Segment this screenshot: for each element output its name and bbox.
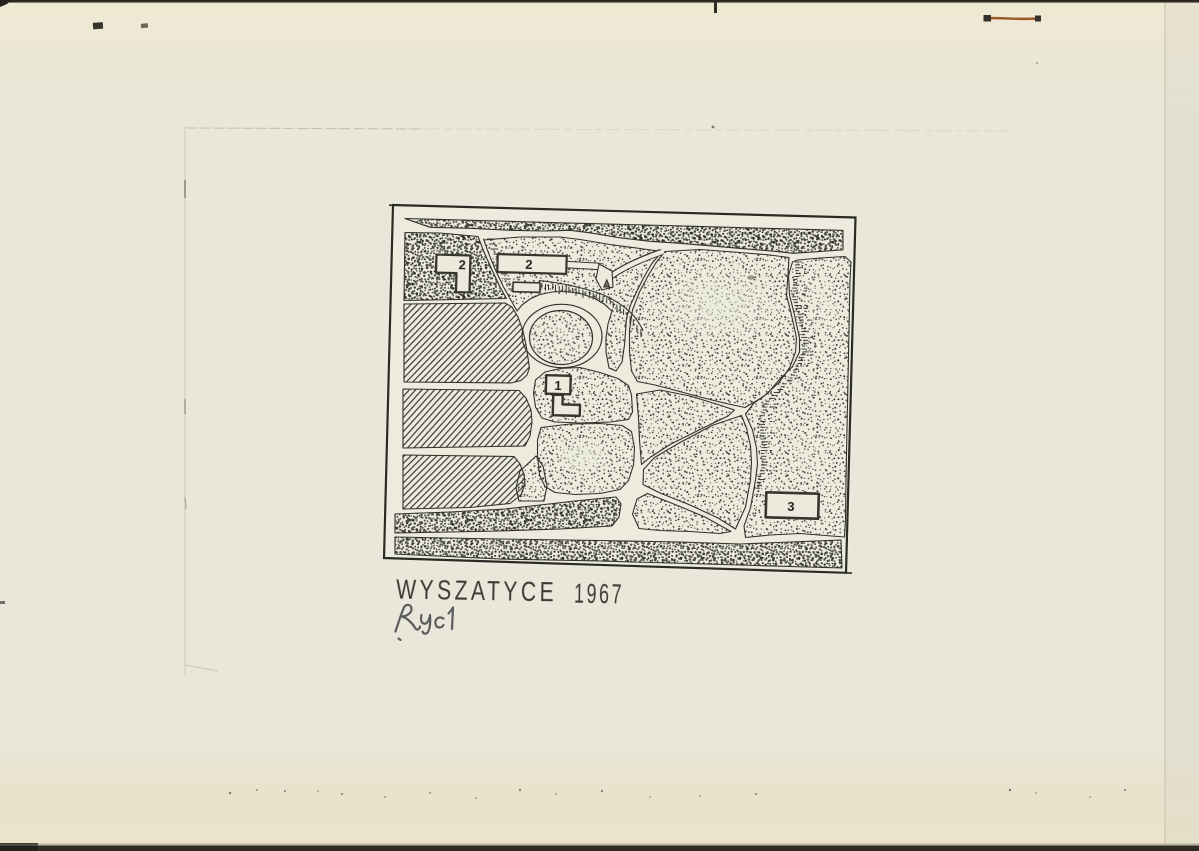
svg-text:2: 2 <box>525 257 533 272</box>
svg-text:1: 1 <box>554 378 562 393</box>
svg-text:3: 3 <box>787 499 795 514</box>
svg-text:WYSZATYCE: WYSZATYCE <box>396 574 558 608</box>
svg-text:1967: 1967 <box>574 578 625 610</box>
svg-text:2: 2 <box>458 257 466 272</box>
